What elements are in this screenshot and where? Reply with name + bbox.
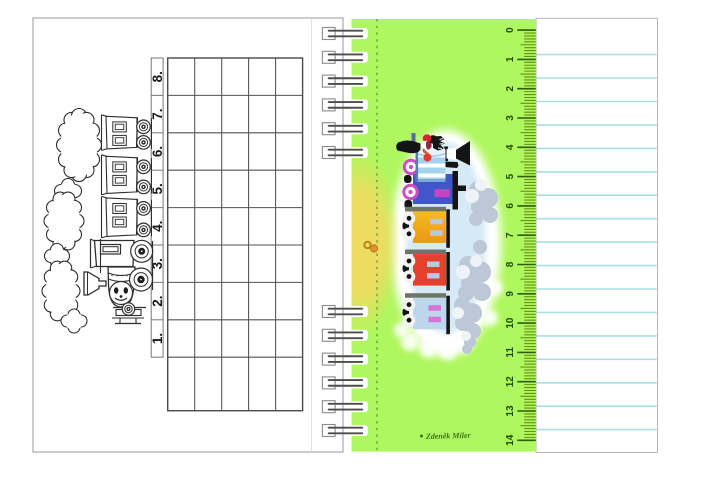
- svg-text:0: 0: [505, 27, 516, 33]
- svg-text:7.: 7.: [150, 108, 165, 119]
- svg-text:2.: 2.: [150, 295, 165, 306]
- svg-text:2: 2: [505, 85, 516, 91]
- svg-text:14: 14: [505, 434, 516, 446]
- svg-text:1: 1: [505, 56, 516, 62]
- svg-text:7: 7: [505, 232, 516, 238]
- svg-text:Zdeněk Miler: Zdeněk Miler: [425, 431, 472, 441]
- svg-text:6: 6: [505, 203, 516, 209]
- svg-text:1.: 1.: [150, 333, 165, 344]
- svg-text:8.: 8.: [150, 71, 165, 82]
- svg-text:5.: 5.: [150, 183, 165, 194]
- svg-text:4.: 4.: [150, 221, 165, 232]
- svg-text:11: 11: [505, 347, 516, 358]
- svg-text:6.: 6.: [150, 146, 165, 157]
- svg-text:8: 8: [505, 261, 516, 267]
- svg-text:9: 9: [505, 291, 516, 297]
- svg-text:3: 3: [505, 115, 516, 121]
- svg-text:12: 12: [505, 376, 516, 388]
- svg-text:10: 10: [505, 317, 516, 329]
- svg-text:4: 4: [505, 144, 516, 150]
- svg-text:13: 13: [505, 405, 516, 417]
- svg-text:5: 5: [505, 173, 516, 179]
